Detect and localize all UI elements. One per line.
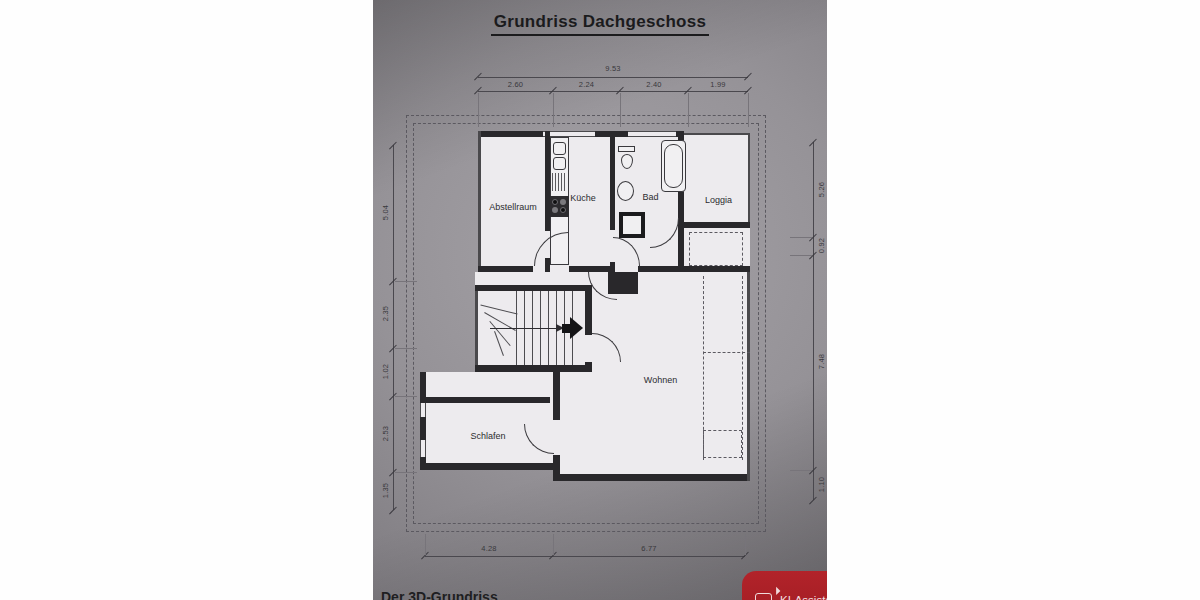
- wall-hall-1: [478, 266, 533, 272]
- dim-tick: [389, 507, 397, 515]
- ai-assistant-icon: [755, 593, 772, 600]
- badge-label: KI-Assiste: [780, 594, 827, 600]
- room-area-loggia: [684, 133, 750, 228]
- floorplan-photo: Grundriss Dachgeschoss: [373, 0, 827, 600]
- wall-wohnen-bottom: [553, 474, 750, 481]
- burner-icon: [552, 207, 558, 213]
- wall-stair-right: [585, 285, 592, 335]
- dim-extension: [395, 281, 417, 282]
- staircase: [482, 291, 585, 365]
- ki-assistent-badge[interactable]: KI-Assiste: [742, 571, 827, 600]
- dim-extension: [745, 534, 746, 555]
- wall-left-b: [420, 417, 426, 440]
- dim-right-seg: 1.10: [817, 465, 826, 505]
- room-label-kueche: Küche: [553, 193, 613, 203]
- dim-extension: [688, 93, 689, 127]
- dim-right-seg: 5.26: [817, 170, 826, 210]
- dim-line-top-segments: [478, 91, 748, 92]
- wall-schlafen-right-upper: [553, 372, 560, 420]
- room-label-abstellraum: Abstellraum: [478, 202, 548, 212]
- dim-top-seg: 2.60: [478, 80, 553, 89]
- dim-top-seg: 1.99: [688, 80, 748, 89]
- caption: Der 3D-Grundriss: [381, 589, 498, 600]
- stair-walk-line: [490, 328, 560, 329]
- dim-extension: [790, 470, 812, 471]
- dim-extension: [395, 348, 417, 349]
- room-area-schlafen: [420, 372, 560, 470]
- roof-slope-box: [689, 232, 743, 266]
- dim-extension: [620, 93, 621, 127]
- kitchen-sink-2: [553, 157, 566, 170]
- dim-extension: [553, 534, 554, 555]
- page: Grundriss Dachgeschoss: [0, 0, 1200, 600]
- dim-extension: [425, 534, 426, 555]
- dim-right-seg: 0.92: [817, 226, 826, 266]
- bathtub-inner: [664, 144, 683, 188]
- dim-left-seg: 1.35: [381, 471, 390, 511]
- dim-bottom-seg: 6.77: [553, 544, 745, 553]
- room-label-loggia: Loggia: [691, 195, 746, 205]
- toilet-cistern: [618, 146, 635, 152]
- dim-left-seg: 2.53: [381, 414, 390, 454]
- roof-slope-box: [703, 430, 742, 458]
- dim-top-total: 9.53: [478, 64, 748, 73]
- dim-left-seg: 2.35: [381, 294, 390, 334]
- dim-extension: [395, 472, 417, 473]
- kitchen-drainer-hatch: [552, 173, 567, 191]
- room-label-wohnen: Wohnen: [623, 375, 698, 385]
- dim-extension: [553, 93, 554, 127]
- dim-line-bottom: [425, 556, 745, 557]
- direction-arrow-icon: [562, 324, 570, 333]
- stair-left-line: [475, 291, 478, 365]
- dim-extension: [790, 237, 812, 238]
- dim-extension: [478, 93, 479, 127]
- dim-left-seg: 1.02: [381, 352, 390, 392]
- dim-bottom-seg: 4.28: [425, 544, 553, 553]
- room-area-wohnen-left: [560, 372, 592, 481]
- wall-schlafen-bottom: [420, 463, 560, 470]
- wall-left-a: [420, 372, 426, 400]
- dim-extension: [748, 93, 749, 127]
- roof-slope-line: [742, 276, 743, 460]
- wall-schlafen-top: [420, 397, 550, 403]
- dim-left-seg: 5.04: [381, 193, 390, 233]
- roof-slope-line: [703, 352, 750, 353]
- wall-kueche-bad: [610, 131, 615, 230]
- wall-stair-bottom: [475, 365, 592, 372]
- loggia-top-edge: [684, 133, 750, 135]
- page-title: Grundriss Dachgeschoss: [373, 12, 827, 36]
- direction-arrow-icon: [570, 317, 583, 339]
- room-label-bad: Bad: [623, 192, 678, 202]
- dim-top-seg: 2.24: [553, 80, 620, 89]
- dim-line-left: [393, 145, 394, 510]
- dim-extension: [395, 396, 417, 397]
- dim-line-right: [813, 142, 814, 500]
- room-label-schlafen: Schlafen: [453, 431, 523, 441]
- wall-wohnen-right: [747, 272, 750, 481]
- dim-line-top-total: [478, 77, 748, 78]
- ai-assistant-icon-spark: [768, 587, 781, 600]
- kitchen-sink-1: [553, 142, 566, 155]
- window-bad: [628, 131, 676, 137]
- window-schlafen-2: [420, 440, 426, 457]
- dim-tick: [744, 73, 752, 81]
- wall-hall-3: [638, 266, 750, 272]
- burner-icon: [560, 207, 566, 213]
- page-title-text: Grundriss Dachgeschoss: [491, 12, 710, 36]
- loggia-right-edge: [748, 133, 750, 226]
- dim-extension: [790, 255, 812, 256]
- dim-top-seg: 2.40: [620, 80, 688, 89]
- dim-right-seg: 7.48: [817, 342, 826, 382]
- wall-loggia-bottom: [682, 222, 750, 228]
- shower-unit: [619, 212, 645, 238]
